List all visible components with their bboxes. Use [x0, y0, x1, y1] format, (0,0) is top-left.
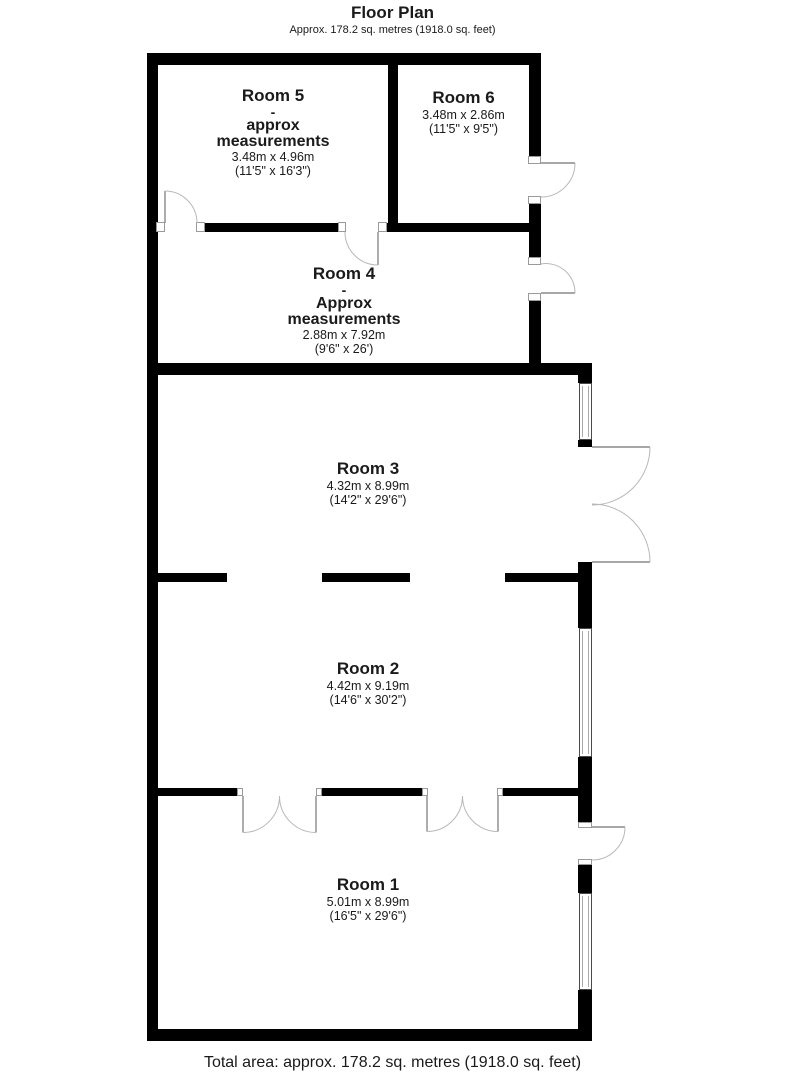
- door-swing-arc: [165, 191, 197, 223]
- door-frame: [528, 257, 541, 265]
- room6-metric-dimensions: 3.48m x 2.86m: [396, 108, 531, 122]
- room3-metric-dimensions: 4.32m x 8.99m: [258, 479, 478, 493]
- door-frame: [196, 222, 205, 232]
- room1-label: Room 1 5.01m x 8.99m (16'5" x 29'6"): [258, 875, 478, 923]
- door-swing-arc: [592, 447, 650, 505]
- wall-left: [147, 53, 158, 1041]
- room5-label: Room 5 - approx measurements 3.48m x 4.9…: [160, 86, 386, 178]
- door-swing-arc: [592, 504, 650, 562]
- total-area-text: Total area: approx. 178.2 sq. metres (19…: [0, 1054, 785, 1072]
- window-room3: [579, 383, 592, 440]
- door-frame: [497, 788, 503, 796]
- door-frame: [578, 822, 592, 828]
- room3-label: Room 3 4.32m x 8.99m (14'2" x 29'6"): [258, 459, 478, 507]
- door-frame: [578, 859, 592, 865]
- window-pane: [582, 386, 589, 437]
- window-room2: [579, 628, 592, 757]
- door-frame: [156, 222, 165, 232]
- wall-right-lower-c: [578, 562, 592, 628]
- door-frame: [422, 788, 428, 796]
- door-frame: [378, 222, 387, 232]
- room1-imperial-dimensions: (16'5" x 29'6"): [258, 909, 478, 923]
- floor-plan-page: Floor Plan Approx. 178.2 sq. metres (191…: [0, 0, 785, 1080]
- door-swing-arc: [541, 163, 575, 197]
- room2-name: Room 2: [258, 659, 478, 679]
- page-subtitle: Approx. 178.2 sq. metres (1918.0 sq. fee…: [0, 24, 785, 36]
- room3-imperial-dimensions: (14'2" x 29'6"): [258, 493, 478, 507]
- room4-name: Room 4: [234, 264, 454, 284]
- door-frame: [338, 222, 346, 232]
- room1-metric-dimensions: 5.01m x 8.99m: [258, 895, 478, 909]
- room1-name: Room 1: [258, 875, 478, 895]
- wall-room3-room2-a: [158, 573, 227, 582]
- door-swing-arc: [541, 264, 575, 293]
- door-frame: [316, 788, 322, 796]
- wall-right-lower-b: [578, 440, 592, 447]
- room4-imperial-dimensions: (9'6" x 26'): [234, 342, 454, 356]
- room3-name: Room 3: [258, 459, 478, 479]
- room6-imperial-dimensions: (11'5" x 9'5"): [396, 122, 531, 136]
- wall-room2-room1-a: [158, 788, 237, 796]
- wall-room5-room4-a: [204, 223, 339, 232]
- room2-label: Room 2 4.42m x 9.19m (14'6" x 30'2"): [258, 659, 478, 707]
- wall-right-lower-e: [578, 865, 592, 893]
- room5-metric-dimensions: 3.48m x 4.96m: [160, 150, 386, 164]
- door-swing-arc: [243, 796, 280, 833]
- room6-label: Room 6 3.48m x 2.86m (11'5" x 9'5"): [396, 88, 531, 136]
- room5-approx: approx: [160, 118, 386, 134]
- room4-measurements: measurements: [234, 312, 454, 328]
- wall-top: [147, 53, 541, 65]
- wall-room2-room1-c: [503, 788, 592, 796]
- wall-room5-room4-b: [385, 223, 529, 232]
- page-title: Floor Plan: [0, 3, 785, 23]
- wall-room3-room2-c: [505, 573, 592, 582]
- window-room1: [579, 893, 592, 990]
- wall-right-lower-a: [578, 363, 592, 383]
- window-pane: [582, 631, 589, 754]
- room2-imperial-dimensions: (14'6" x 30'2"): [258, 693, 478, 707]
- door-frame: [528, 196, 541, 204]
- door-swing-arc: [280, 796, 317, 833]
- wall-right-upper-b: [529, 204, 541, 258]
- room5-imperial-dimensions: (11'5" x 16'3"): [160, 164, 386, 178]
- wall-right-lower-f: [578, 990, 592, 1041]
- door-frame: [237, 788, 243, 796]
- wall-bottom: [147, 1029, 592, 1041]
- door-swing-arc: [427, 796, 463, 832]
- room2-metric-dimensions: 4.42m x 9.19m: [258, 679, 478, 693]
- room4-approx: Approx: [234, 296, 454, 312]
- door-frame: [528, 156, 541, 164]
- room5-name: Room 5: [160, 86, 386, 106]
- door-swing-arc: [345, 232, 378, 265]
- door-frame: [528, 293, 541, 301]
- wall-room4-room3-divider: [147, 363, 592, 375]
- wall-room3-room2-b: [322, 573, 410, 582]
- room4-label: Room 4 - Approx measurements 2.88m x 7.9…: [234, 264, 454, 356]
- window-pane: [582, 896, 589, 987]
- room5-measurements: measurements: [160, 134, 386, 150]
- door-swing-arc: [592, 827, 625, 860]
- wall-room2-room1-b: [322, 788, 422, 796]
- door-swing-arc: [463, 796, 499, 832]
- room6-name: Room 6: [396, 88, 531, 108]
- room4-metric-dimensions: 2.88m x 7.92m: [234, 328, 454, 342]
